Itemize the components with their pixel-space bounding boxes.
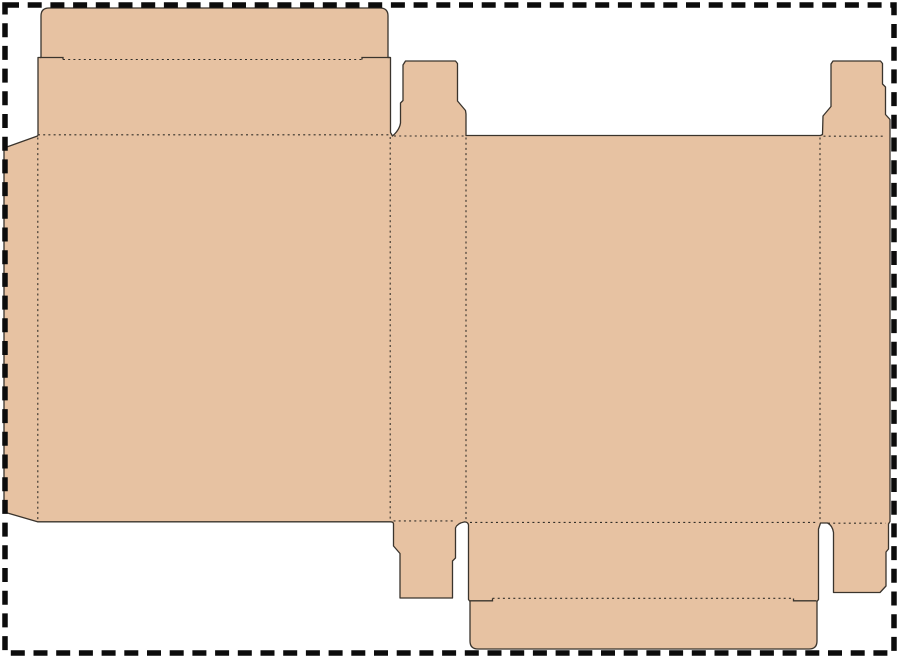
carton-blank-shape xyxy=(4,8,890,649)
box-dieline-drawing xyxy=(0,0,900,658)
carton-silhouette xyxy=(4,8,890,649)
template-sheet xyxy=(0,0,900,658)
